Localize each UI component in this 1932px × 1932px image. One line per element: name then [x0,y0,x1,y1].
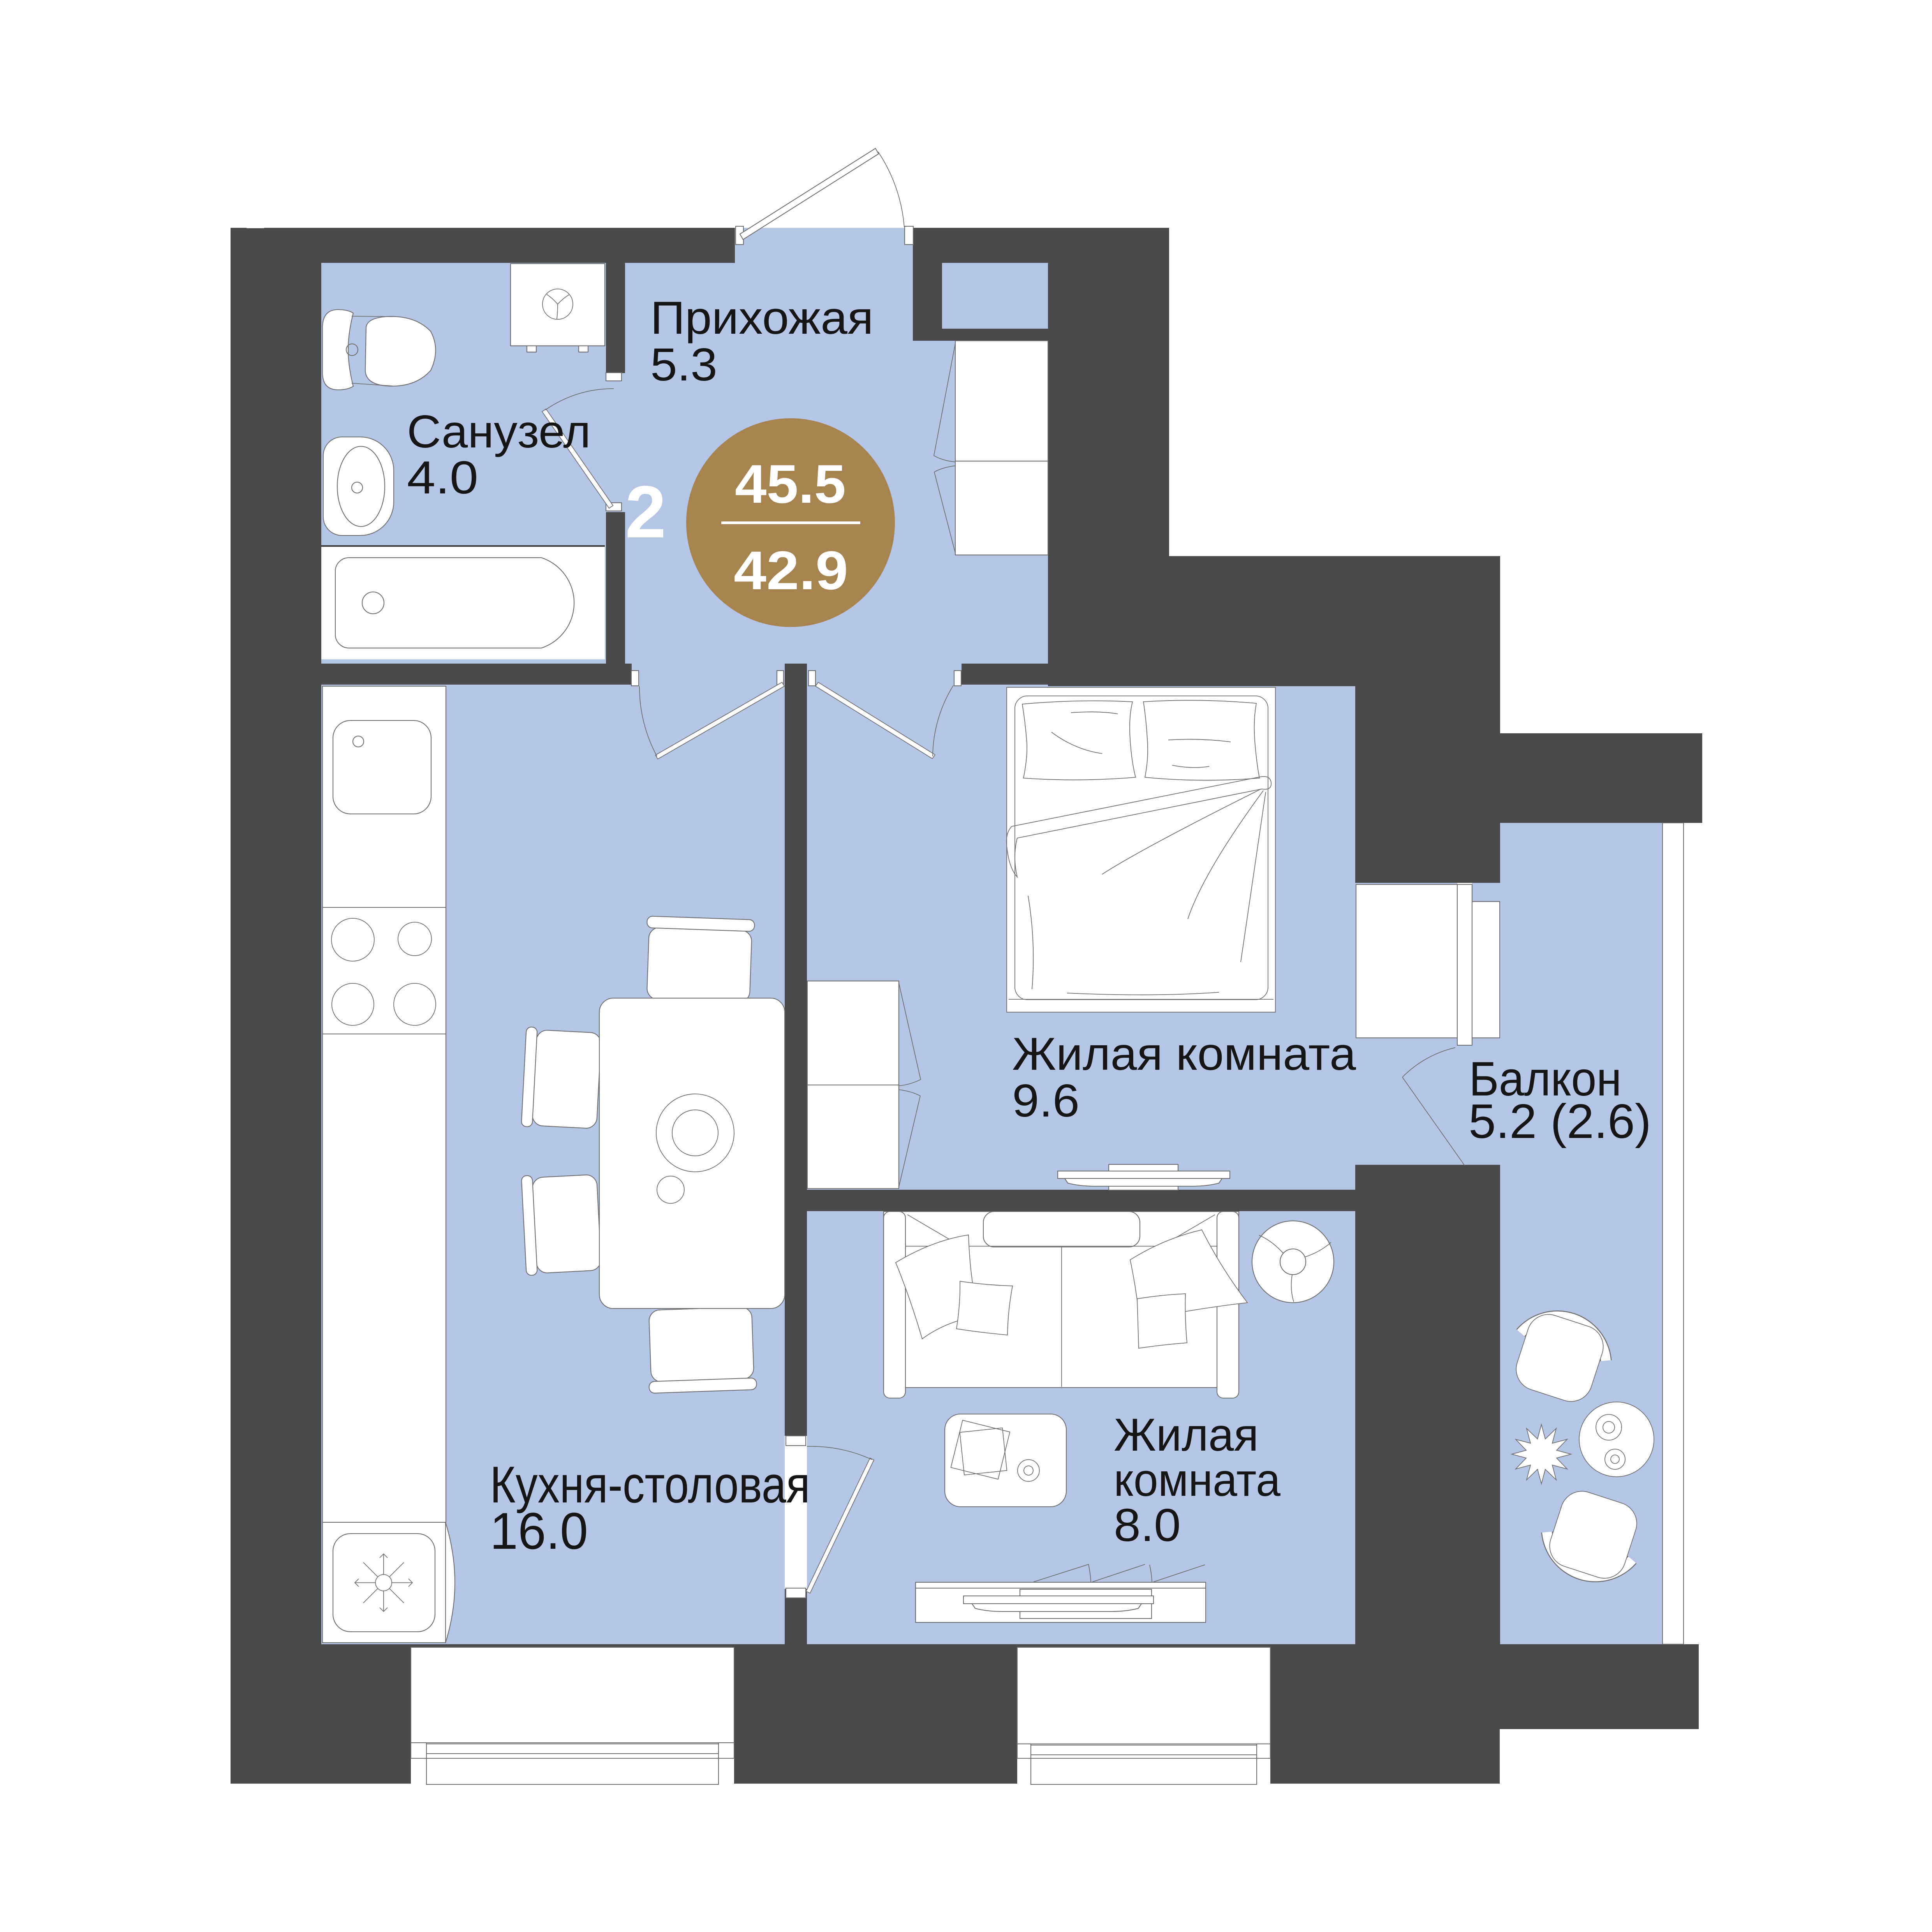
svg-text:5.3: 5.3 [650,339,717,391]
svg-text:9.6: 9.6 [1012,1075,1080,1127]
svg-text:Жилая: Жилая [1114,1409,1259,1461]
svg-text:16.0: 16.0 [490,1502,588,1560]
svg-text:42.9: 42.9 [734,540,848,601]
svg-text:Прихожая: Прихожая [650,292,874,344]
svg-text:45.5: 45.5 [735,453,846,514]
svg-text:комната: комната [1114,1454,1281,1506]
svg-text:5.2 (2.6): 5.2 (2.6) [1469,1095,1651,1148]
svg-text:Санузел: Санузел [407,406,591,458]
svg-text:Жилая комната: Жилая комната [1012,1028,1356,1080]
svg-text:4.0: 4.0 [407,452,478,504]
svg-text:8.0: 8.0 [1114,1499,1181,1551]
svg-text:2: 2 [625,471,666,553]
